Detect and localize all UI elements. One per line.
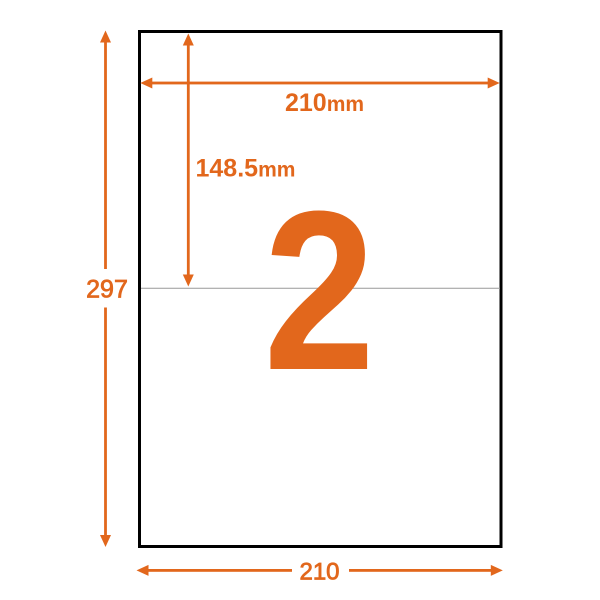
svg-text:2: 2 (264, 165, 376, 418)
svg-text:210: 210 (299, 559, 339, 586)
svg-text:210mm: 210mm (285, 89, 364, 117)
svg-text:297: 297 (86, 276, 128, 304)
svg-text:148.5mm: 148.5mm (196, 155, 296, 183)
